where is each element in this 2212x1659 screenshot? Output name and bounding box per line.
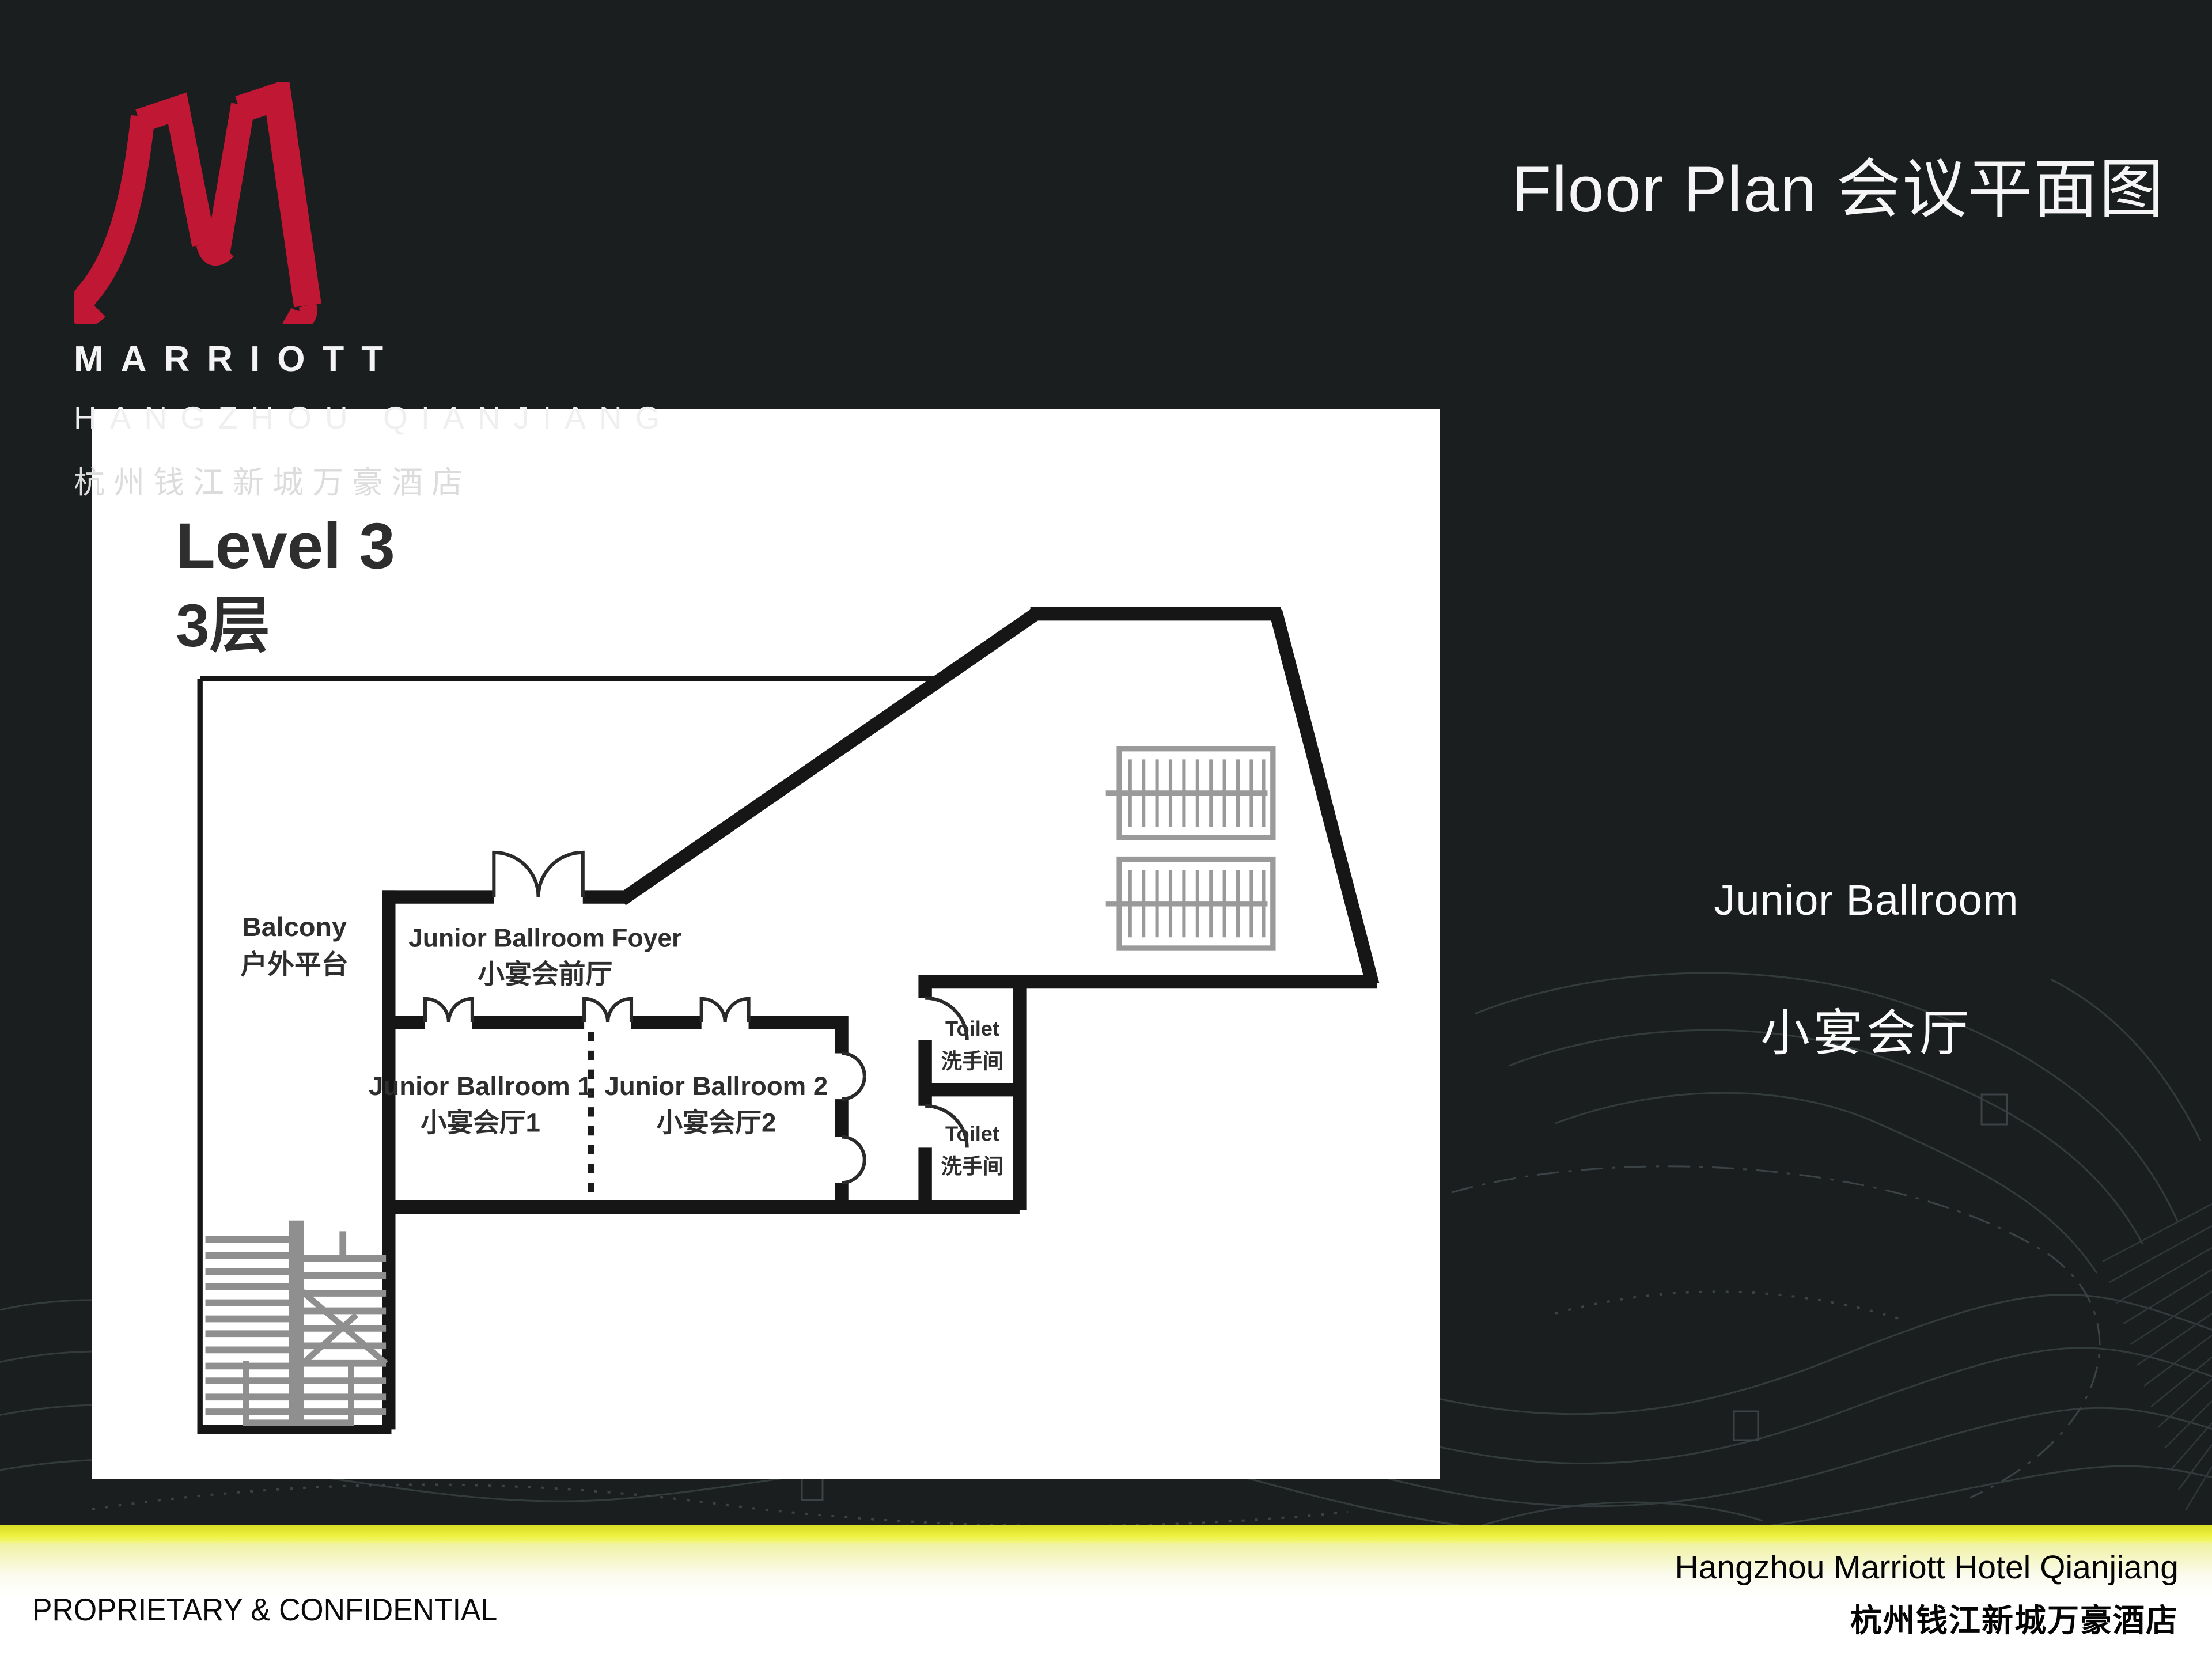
balcony-label-en: Balcony <box>242 912 347 942</box>
brand-location-en: HANGZHOU QIANJIANG <box>74 399 673 436</box>
footer-hotel-name-en: Hangzhou Marriott Hotel Qianjiang <box>1675 1548 2179 1586</box>
balcony-label-cn: 户外平台 <box>240 949 348 979</box>
slide: { "colors": { "background": "#1b1e1f", "… <box>0 0 2212 1659</box>
brand-location-cn: 杭州钱江新城万豪酒店 <box>74 457 673 502</box>
page-title: Floor Plan 会议平面图 <box>1512 137 2165 230</box>
room-labels: Junior Ballroom Foyer 小宴会前厅 Balcony 户外平台… <box>240 912 1003 1178</box>
stairs-icon <box>206 1221 387 1423</box>
foyer-label-cn: 小宴会前厅 <box>478 959 612 989</box>
brand-name: MARRIOTT <box>74 339 673 380</box>
footer-hotel-name: Hangzhou Marriott Hotel Qianjiang 杭州钱江新城… <box>1675 1548 2179 1641</box>
ballroom1-label-cn: 小宴会厅1 <box>421 1108 540 1137</box>
level-label-en: Level 3 <box>176 509 395 582</box>
highlight-room-en: Junior Ballroom <box>1688 876 2045 925</box>
hatch-patch <box>2103 1204 2212 1510</box>
highlight-room-label: Junior Ballroom 小宴会厅 <box>1688 876 2045 1065</box>
outer-walls <box>198 679 942 1429</box>
ballroom1-label-en: Junior Ballroom 1 <box>369 1071 592 1101</box>
footer-accent-stripe <box>0 1525 2212 1543</box>
escalator-icon <box>1106 749 1273 948</box>
highlight-room-cn: 小宴会厅 <box>1688 993 2045 1065</box>
ballroom2-label-en: Junior Ballroom 2 <box>605 1071 828 1101</box>
floor-plan-drawing: Level 3 3层 <box>92 409 1440 1479</box>
toilet2-label-cn: 洗手间 <box>941 1154 1004 1178</box>
floor-plan-panel: Level 3 3层 <box>92 409 1440 1479</box>
foyer-label-en: Junior Ballroom Foyer <box>408 925 681 953</box>
toilet1-label-en: Toilet <box>945 1017 999 1040</box>
toilet1-label-cn: 洗手间 <box>941 1049 1004 1073</box>
ballroom2-label-cn: 小宴会厅2 <box>657 1108 777 1137</box>
level-label-cn: 3层 <box>176 592 270 660</box>
brand-block: MARRIOTT HANGZHOU QIANJIANG 杭州钱江新城万豪酒店 <box>74 82 673 502</box>
toilet2-label-en: Toilet <box>945 1122 999 1146</box>
main-walls <box>382 611 1377 1429</box>
marriott-m-icon <box>74 82 321 324</box>
footer-hotel-name-cn: 杭州钱江新城万豪酒店 <box>1675 1594 2179 1641</box>
footer-confidential-label: PROPRIETARY & CONFIDENTIAL <box>32 1591 497 1628</box>
footer: PROPRIETARY & CONFIDENTIAL Hangzhou Marr… <box>0 1543 2212 1659</box>
